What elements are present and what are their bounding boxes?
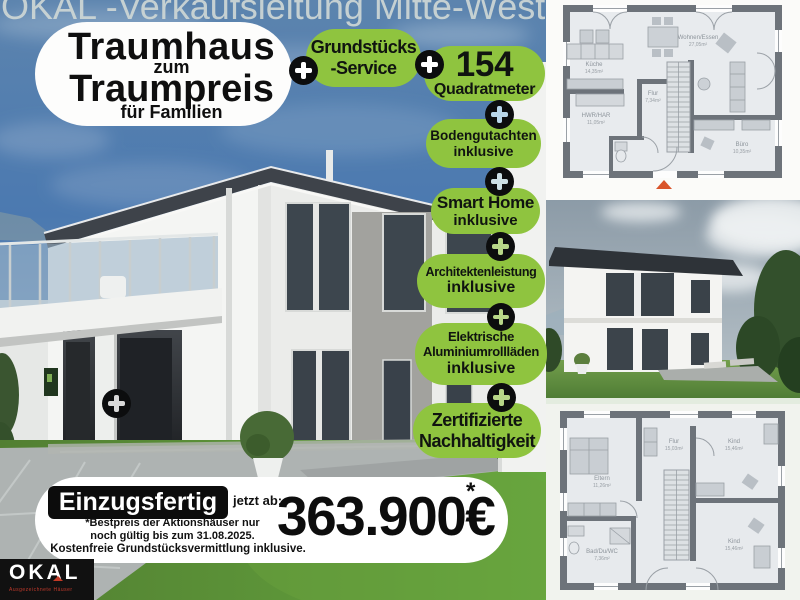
svg-text:HWR/HAR: HWR/HAR [582,113,611,119]
svg-text:27,05m²: 27,05m² [689,42,708,48]
svg-text:Eltern: Eltern [594,476,610,482]
svg-text:Flur: Flur [648,91,658,97]
svg-text:10,35m²: 10,35m² [733,149,752,155]
svg-text:Wohnen/Essen: Wohnen/Essen [678,35,719,41]
svg-text:7,34m²: 7,34m² [645,98,661,104]
svg-text:Küche: Küche [585,62,603,68]
svg-text:15,03m²: 15,03m² [665,446,684,452]
svg-text:Kind: Kind [728,439,740,445]
svg-text:15,46m²: 15,46m² [725,546,744,552]
svg-text:Flur: Flur [669,439,679,445]
svg-text:7,36m²: 7,36m² [594,556,610,562]
svg-text:Büro: Büro [736,142,749,148]
svg-text:14,35m²: 14,35m² [585,69,604,75]
svg-text:Kind: Kind [728,539,740,545]
svg-text:Bad/Du/WC: Bad/Du/WC [586,549,618,555]
svg-text:15,46m²: 15,46m² [725,446,744,452]
svg-text:11,26m²: 11,26m² [593,483,611,489]
svg-text:11,05m²: 11,05m² [587,120,605,126]
